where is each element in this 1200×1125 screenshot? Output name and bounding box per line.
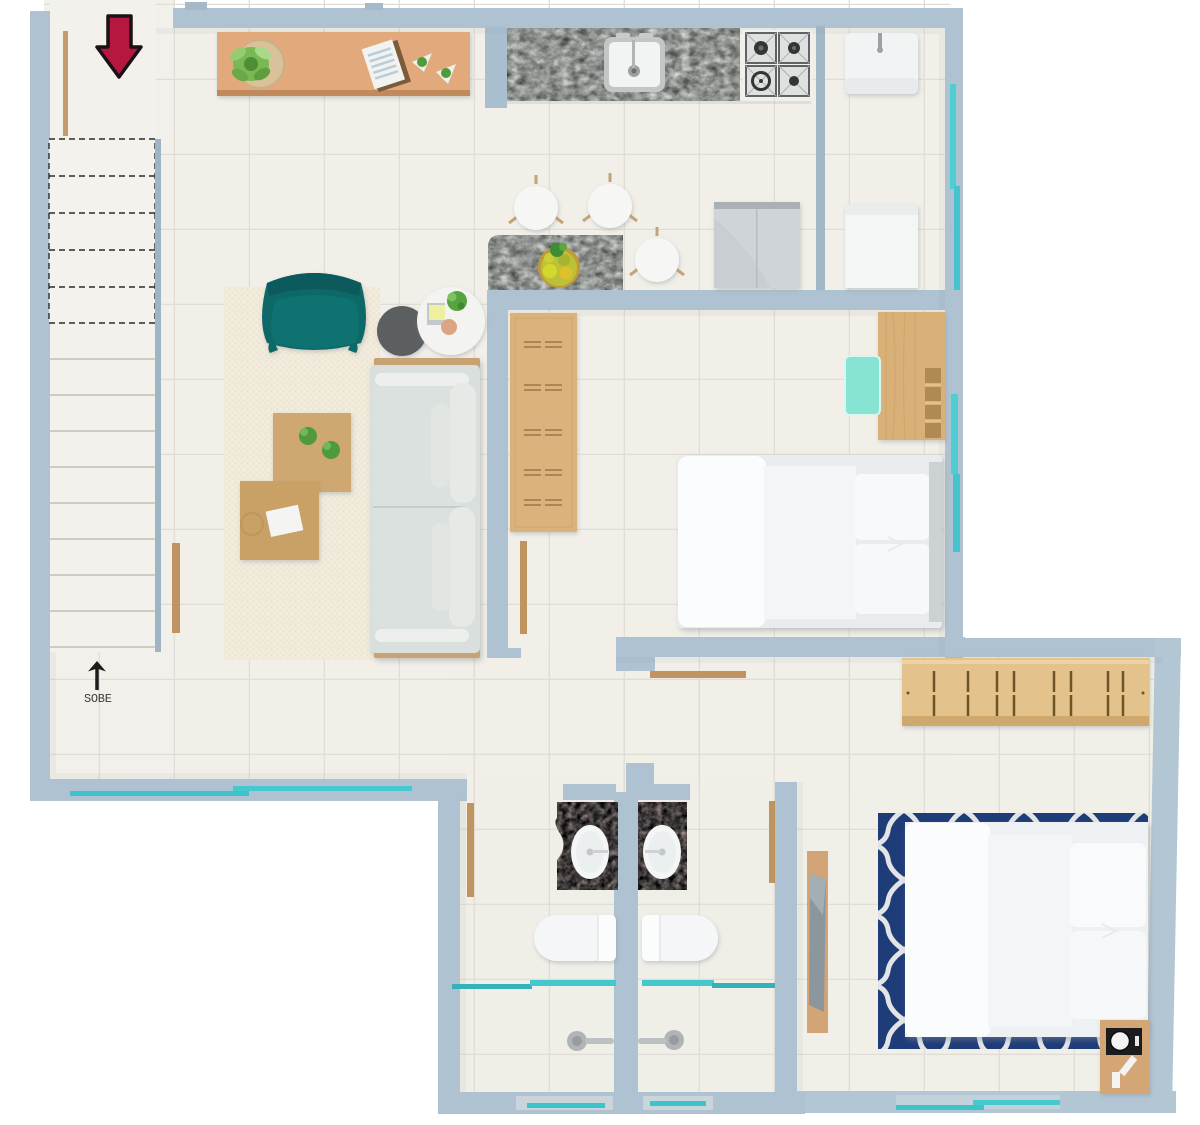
svg-text:SOBE: SOBE xyxy=(84,692,112,706)
